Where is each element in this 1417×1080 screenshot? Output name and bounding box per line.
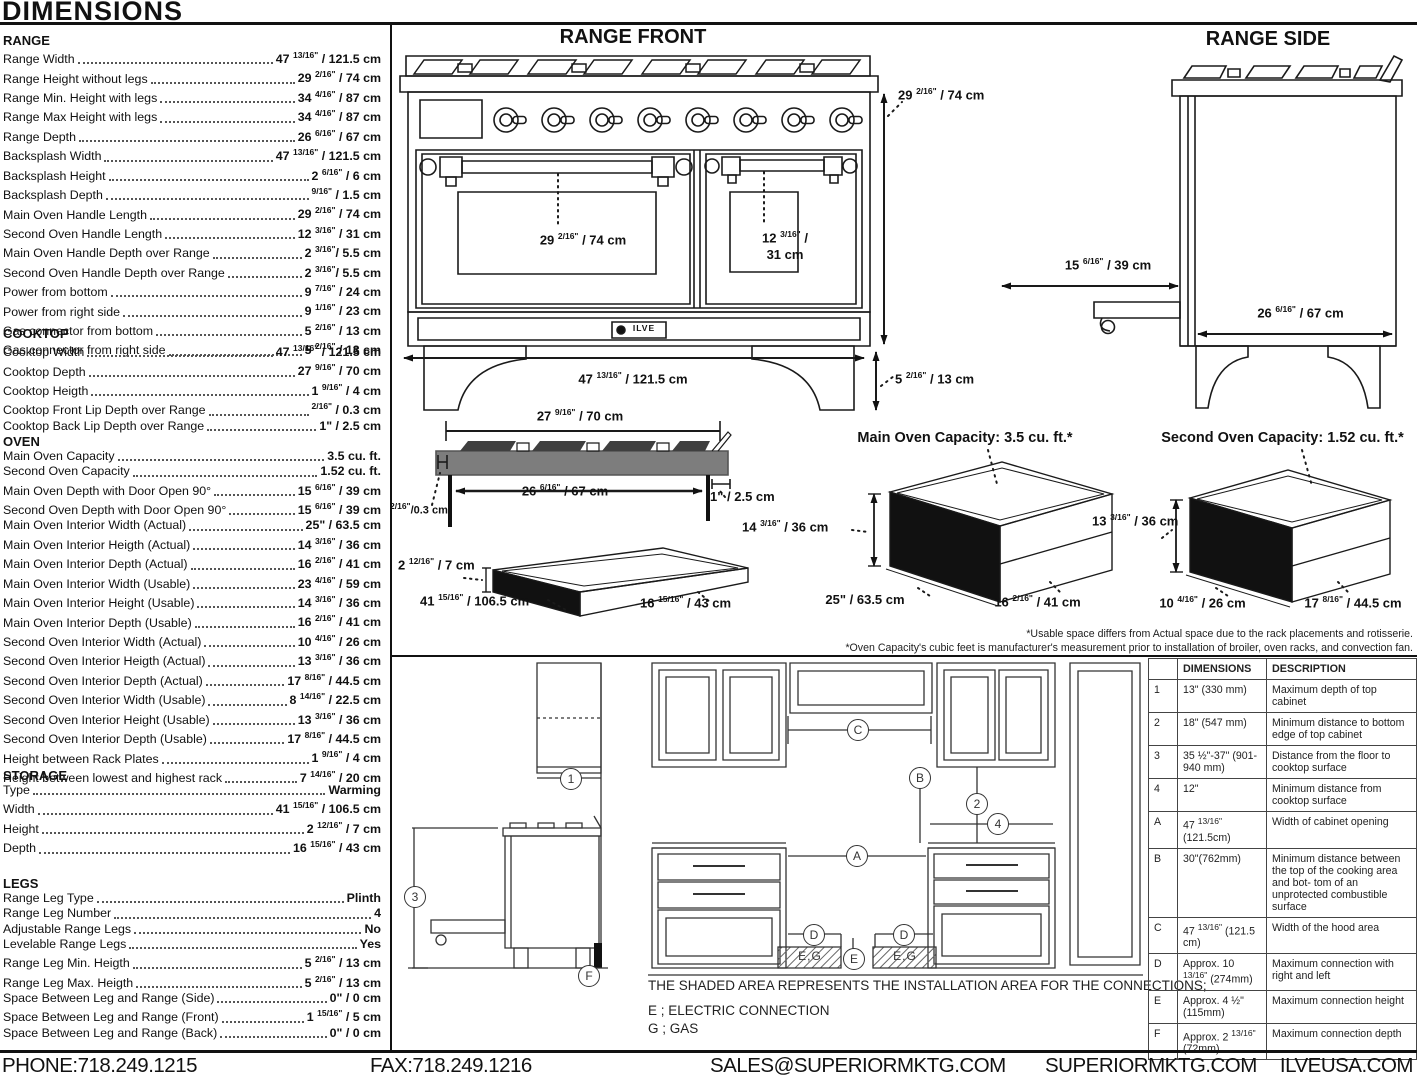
table-cell-description: Width of the hood area <box>1267 917 1417 954</box>
spec-value: 47 13/16" / 121.5 cm <box>276 48 381 67</box>
dotted-leader <box>191 568 295 570</box>
footer-site: SUPERIORMKTG.COM <box>1045 1054 1257 1078</box>
spec-section-storage: STORAGETypeWarmingWidth41 15/16" / 106.5… <box>3 768 381 857</box>
spec-value: 5 2/16" / 13 cm <box>305 972 381 991</box>
footnote-2: *Oven Capacity's cubic feet is manufactu… <box>693 642 1413 656</box>
dotted-leader <box>79 140 295 142</box>
spec-value: 14 3/16" / 36 cm <box>298 592 381 611</box>
spec-value: 27 9/16" / 70 cm <box>298 360 381 379</box>
spec-section-cooktop: COOKTOPCooktop Width47 13/16" / 121.5 cm… <box>3 326 381 434</box>
table-cell-dimensions: 12" <box>1178 779 1267 812</box>
spec-section-legs: LEGSRange Leg TypePlinthRange Leg Number… <box>3 876 381 1041</box>
spec-value: 0" / 0 cm <box>330 991 381 1006</box>
spec-row: Range Leg Max. Heigth5 2/16" / 13 cm <box>3 972 381 991</box>
dotted-leader <box>214 494 295 496</box>
range-front-diagram: RANGE FRONT <box>398 26 998 426</box>
spec-row: Range Leg TypePlinth <box>3 891 381 906</box>
spec-label: Cooktop Depth <box>3 365 86 380</box>
spec-row: Backsplash Width47 13/16" / 121.5 cm <box>3 145 381 164</box>
spec-row: Range Leg Min. Heigth5 2/16" / 13 cm <box>3 952 381 971</box>
spec-label: Levelable Range Legs <box>3 937 126 952</box>
spec-row: Backsplash Height2 6/16" / 6 cm <box>3 165 381 184</box>
table-cell-description: Distance from the floor to cooktop surfa… <box>1267 746 1417 779</box>
spec-label: Second Oven Interior Width (Usable) <box>3 693 205 708</box>
spec-label: Second Oven Interior Depth (Usable) <box>3 732 207 747</box>
spec-label: Adjustable Range Legs <box>3 922 131 937</box>
front-second-handle-label-2: 31 cm <box>735 247 835 262</box>
spec-label: Depth <box>3 841 36 856</box>
spec-value: 13 3/16" / 36 cm <box>298 709 381 728</box>
spec-value: 2 3/16"/ 5.5 cm <box>305 242 381 261</box>
spec-row: Second Oven Interior Width (Actual)10 4/… <box>3 631 381 650</box>
spec-label: Second Oven Handle Depth over Range <box>3 266 225 281</box>
table-cell-id: E <box>1149 990 1178 1023</box>
dotted-leader <box>87 355 273 357</box>
dotted-leader <box>133 967 302 969</box>
dotted-leader <box>109 179 309 181</box>
spec-label: Second Oven Interior Depth (Actual) <box>3 674 203 689</box>
table-cell-description: Maximum connection height <box>1267 990 1417 1023</box>
dotted-leader <box>213 723 295 725</box>
dotted-leader <box>208 704 286 706</box>
spec-label: Range Leg Max. Heigth <box>3 976 133 991</box>
spec-row: Main Oven Handle Length29 2/16" / 74 cm <box>3 203 381 222</box>
table-row: 113" (330 mm)Maximum depth of top cabine… <box>1149 680 1417 713</box>
table-row: A47 13/16"(121.5cm)Width of cabinet open… <box>1149 812 1417 849</box>
spec-row: Main Oven Depth with Door Open 90°15 6/1… <box>3 480 381 499</box>
spec-value: 29 2/16" / 74 cm <box>298 67 381 86</box>
storage-height-label: 2 12/16" / 7 cm <box>398 556 475 572</box>
spec-value: 17 8/16" / 44.5 cm <box>287 670 381 689</box>
spec-row: Main Oven Interior Depth (Actual)16 2/16… <box>3 553 381 572</box>
dotted-leader <box>229 513 294 515</box>
dotted-leader <box>213 257 302 259</box>
table-cell-dimensions: 35 ½"-37" (901-940 mm) <box>1178 746 1267 779</box>
front-leg-height-label: 5 2/16" / 13 cm <box>895 370 974 386</box>
dotted-leader <box>150 218 295 220</box>
gas-connection-note: G ; GAS <box>648 1021 698 1036</box>
spec-row: Range Max Height with legs34 4/16" / 87 … <box>3 106 381 125</box>
spec-value: Plinth <box>347 891 381 906</box>
table-cell-description: Width of cabinet opening <box>1267 812 1417 849</box>
spec-label: Backsplash Height <box>3 169 106 184</box>
table-header-dimensions: DIMENSIONS <box>1178 659 1267 680</box>
spec-value: 41 15/16" / 106.5 cm <box>276 798 381 817</box>
table-header-id <box>1149 659 1178 680</box>
spec-label: Type <box>3 783 30 798</box>
dotted-leader <box>133 475 318 477</box>
footnote-1: *Usable space differs from Actual space … <box>693 628 1413 642</box>
table-header-row: DIMENSIONS DESCRIPTION <box>1149 659 1417 680</box>
spec-label: Main Oven Handle Length <box>3 208 147 223</box>
spec-label: Range Height without legs <box>3 72 148 87</box>
spec-label: Second Oven Capacity <box>3 464 130 479</box>
spec-row: Space Between Leg and Range (Front)1 15/… <box>3 1006 381 1025</box>
spec-label: Space Between Leg and Range (Front) <box>3 1010 219 1025</box>
spec-label: Backsplash Width <box>3 149 101 164</box>
spec-label: Main Oven Capacity <box>3 449 115 464</box>
spec-label: Cooktop Back Lip Depth over Range <box>3 419 204 434</box>
spec-section-oven: OVENMain Oven Capacity3.5 cu. ft.Second … <box>3 434 381 786</box>
spec-value: 34 4/16" / 87 cm <box>298 87 381 106</box>
spec-section-range: RANGERange Width47 13/16" / 121.5 cmRang… <box>3 33 381 359</box>
dotted-leader <box>204 645 294 647</box>
spec-value: 12 3/16" / 31 cm <box>298 223 381 242</box>
spec-label: Range Leg Number <box>3 906 111 921</box>
spec-label: Second Oven Handle Length <box>3 227 162 242</box>
spec-value: 1 9/16" / 4 cm <box>312 747 382 766</box>
spec-row: Space Between Leg and Range (Side)0" / 0… <box>3 991 381 1006</box>
table-cell-dimensions: 47 13/16"(121.5cm) <box>1178 812 1267 849</box>
installation-diagram: 1 3 F C B 2 4 A D D E E,G E,G THE SHADED… <box>398 660 1148 1040</box>
marker-b: B <box>909 767 931 789</box>
spec-value: 26 6/16" / 67 cm <box>298 126 381 145</box>
spec-label: Main Oven Interior Width (Usable) <box>3 577 190 592</box>
header-rule <box>0 22 1417 25</box>
spec-label: Cooktop Heigth <box>3 384 88 399</box>
dotted-leader <box>114 917 371 919</box>
marker-1: 1 <box>560 768 582 790</box>
range-side-drawing <box>998 54 1417 426</box>
dotted-leader <box>209 414 309 416</box>
spec-value: 1.52 cu. ft. <box>320 464 381 479</box>
spec-row: Main Oven Interior Height (Usable)14 3/1… <box>3 592 381 611</box>
table-cell-dimensions: 47 13/16" (121.5 cm) <box>1178 917 1267 954</box>
range-side-title: RANGE SIDE <box>1168 28 1368 51</box>
spec-label: Space Between Leg and Range (Back) <box>3 1026 217 1041</box>
spec-section-title: STORAGE <box>3 768 381 783</box>
dotted-leader <box>104 160 272 162</box>
spec-label: Cooktop Front Lip Depth over Range <box>3 403 206 418</box>
spec-label: Second Oven Interior Width (Actual) <box>3 635 201 650</box>
spec-row: TypeWarming <box>3 783 381 798</box>
spec-row: Depth16 15/16" / 43 cm <box>3 837 381 856</box>
spec-row: Second Oven Interior Depth (Usable)17 8/… <box>3 728 381 747</box>
dotted-leader <box>206 684 285 686</box>
table-cell-id: B <box>1149 848 1178 917</box>
spec-label: Second Oven Depth with Door Open 90° <box>3 503 226 518</box>
footnotes: *Usable space differs from Actual space … <box>693 628 1413 655</box>
spec-row: Second Oven Handle Length12 3/16" / 31 c… <box>3 223 381 242</box>
spec-row: Main Oven Interior Depth (Usable)16 2/16… <box>3 611 381 630</box>
spec-row: Cooktop Front Lip Depth over Range2/16" … <box>3 399 381 418</box>
spec-label: Space Between Leg and Range (Side) <box>3 991 214 1006</box>
dimensions-table: DIMENSIONS DESCRIPTION 113" (330 mm)Maxi… <box>1148 658 1417 1060</box>
spec-row: Second Oven Interior Heigth (Actual)13 3… <box>3 650 381 669</box>
spec-section-title: OVEN <box>3 434 381 449</box>
dotted-leader <box>111 295 302 297</box>
spec-row: Space Between Leg and Range (Back)0" / 0… <box>3 1026 381 1041</box>
spec-value: 1 9/16" / 4 cm <box>312 380 382 399</box>
spec-section-title: LEGS <box>3 876 381 891</box>
footer-fax: FAX:718.249.1216 <box>370 1054 532 1078</box>
spec-row: Range Depth26 6/16" / 67 cm <box>3 126 381 145</box>
dotted-leader <box>33 793 326 795</box>
dotted-leader <box>220 1036 326 1038</box>
table-row: DApprox. 10 13/16" (274mm)Maximum connec… <box>1149 954 1417 991</box>
dotted-leader <box>89 375 295 377</box>
spec-value: 47 13/16" / 121.5 cm <box>276 145 381 164</box>
spec-label: Main Oven Handle Depth over Range <box>3 246 210 261</box>
dotted-leader <box>123 315 302 317</box>
spec-value: 17 8/16" / 44.5 cm <box>287 728 381 747</box>
spec-row: Height2 12/16" / 7 cm <box>3 818 381 837</box>
dotted-leader <box>165 237 295 239</box>
spec-row: Power from right side9 1/16" / 23 cm <box>3 300 381 319</box>
dotted-leader <box>91 394 308 396</box>
spec-row: Range Leg Number4 <box>3 906 381 921</box>
dotted-leader <box>134 932 361 934</box>
marker-4: 4 <box>987 813 1009 835</box>
spec-label: Backsplash Depth <box>3 188 103 203</box>
table-cell-id: 4 <box>1149 779 1178 812</box>
table-cell-description: Maximum depth of top cabinet <box>1267 680 1417 713</box>
spec-row: Levelable Range LegsYes <box>3 937 381 952</box>
marker-3: 3 <box>404 886 426 908</box>
spec-value: 25" / 63.5 cm <box>306 518 381 533</box>
dotted-leader <box>106 198 309 200</box>
spec-row: Second Oven Interior Height (Usable)13 3… <box>3 709 381 728</box>
dotted-leader <box>228 276 302 278</box>
table-cell-description: Minimum distance to bottom edge of top c… <box>1267 713 1417 746</box>
spec-value: 23 4/16" / 59 cm <box>298 573 381 592</box>
spec-row: Cooktop Depth27 9/16" / 70 cm <box>3 360 381 379</box>
marker-a: A <box>846 845 868 867</box>
dotted-leader <box>162 762 309 764</box>
spec-label: Range Width <box>3 52 75 67</box>
dotted-leader <box>193 548 294 550</box>
footer-email: SALES@SUPERIORMKTG.COM <box>710 1054 1006 1078</box>
spec-row: Main Oven Interior Width (Usable)23 4/16… <box>3 573 381 592</box>
table-cell-id: 3 <box>1149 746 1178 779</box>
spec-label: Height between Rack Plates <box>3 752 159 767</box>
spec-value: 5 2/16" / 13 cm <box>305 952 381 971</box>
front-height-label: 29 2/16" / 74 cm <box>898 86 984 102</box>
spec-row: Power from bottom9 7/16" / 24 cm <box>3 281 381 300</box>
spec-row: Range Min. Height with legs34 4/16" / 87… <box>3 87 381 106</box>
spec-label: Second Oven Interior Height (Usable) <box>3 713 210 728</box>
dotted-leader <box>97 901 344 903</box>
marker-2: 2 <box>966 793 988 815</box>
installation-note: THE SHADED AREA REPRESENTS THE INSTALLAT… <box>648 978 1207 993</box>
spec-row: Range Width47 13/16" / 121.5 cm <box>3 48 381 67</box>
spec-row: Main Oven Interior Heigth (Actual)14 3/1… <box>3 534 381 553</box>
spec-value: 0" / 0 cm <box>330 1026 381 1041</box>
dotted-leader <box>207 429 316 431</box>
marker-f: F <box>578 965 600 987</box>
electric-connection-note: E ; ELECTRIC CONNECTION <box>648 1003 830 1018</box>
spec-row: Backsplash Depth9/16" / 1.5 cm <box>3 184 381 203</box>
dotted-leader <box>160 121 294 123</box>
dotted-leader <box>208 665 294 667</box>
dotted-leader <box>42 832 304 834</box>
spec-row: Main Oven Interior Width (Actual)25" / 6… <box>3 518 381 533</box>
dotted-leader <box>38 813 273 815</box>
side-drawer-extension-label: 15 6/16" / 39 cm <box>1033 256 1183 272</box>
table-cell-dimensions: 18" (547 mm) <box>1178 713 1267 746</box>
second-oven-width-label: 10 4/16" / 26 cm <box>1140 594 1265 610</box>
table-cell-description: Minimum distance between the top of the … <box>1267 848 1417 917</box>
main-oven-depth-label: 16 2/16" / 41 cm <box>975 593 1100 609</box>
dotted-leader <box>151 82 295 84</box>
side-depth-label: 26 6/16" / 67 cm <box>1203 304 1398 320</box>
cooktop-width-label: 27 9/16" / 70 cm <box>450 407 710 423</box>
table-cell-description: Maximum connection with right and left <box>1267 954 1417 991</box>
spec-row: Width41 15/16" / 106.5 cm <box>3 798 381 817</box>
dotted-leader <box>217 1001 326 1003</box>
spec-label: Range Leg Type <box>3 891 94 906</box>
dotted-leader <box>193 587 294 589</box>
dotted-leader <box>118 459 325 461</box>
dotted-leader <box>136 986 301 988</box>
spec-value: 3.5 cu. ft. <box>327 449 381 464</box>
dimensions-spec-sheet: DIMENSIONS RANGERange Width47 13/16" / 1… <box>0 0 1417 1080</box>
spec-value: 29 2/16" / 74 cm <box>298 203 381 222</box>
spec-value: 15 6/16" / 39 cm <box>298 499 381 518</box>
spec-value: 9/16" / 1.5 cm <box>312 184 381 203</box>
spec-value: 2 3/16"/ 5.5 cm <box>305 262 381 281</box>
spec-value: 16 15/16" / 43 cm <box>293 837 381 856</box>
spec-label: Width <box>3 802 35 817</box>
spec-row: Second Oven Capacity1.52 cu. ft. <box>3 464 381 479</box>
spec-row: Range Height without legs29 2/16" / 74 c… <box>3 67 381 86</box>
spec-value: 2 12/16" / 7 cm <box>307 818 381 837</box>
dotted-leader <box>197 606 294 608</box>
table-row: 218" (547 mm)Minimum distance to bottom … <box>1149 713 1417 746</box>
spec-value: 10 4/16" / 26 cm <box>298 631 381 650</box>
spec-label: Range Depth <box>3 130 76 145</box>
spec-label: Second Oven Interior Heigth (Actual) <box>3 654 205 669</box>
dotted-leader <box>195 626 295 628</box>
marker-d-right: D <box>893 924 915 946</box>
spec-value: 15 6/16" / 39 cm <box>298 480 381 499</box>
spec-label: Power from right side <box>3 305 120 320</box>
spec-label: Range Min. Height with legs <box>3 91 157 106</box>
main-oven-capacity-diagram: Main Oven Capacity: 3.5 cu. ft.* <box>740 430 1140 630</box>
shaded-area-label-left: E,G <box>780 949 840 963</box>
spec-value: Yes <box>360 937 381 952</box>
spec-value: 2 6/16" / 6 cm <box>312 165 382 184</box>
table-row: B30"(762mm)Minimum distance between the … <box>1149 848 1417 917</box>
spec-value: 2/16" / 0.3 cm <box>312 399 381 418</box>
table-cell-dimensions: Approx. 10 13/16" (274mm) <box>1178 954 1267 991</box>
shaded-area-label-right: E,G <box>875 949 935 963</box>
table-row: 335 ½"-37" (901-940 mm)Distance from the… <box>1149 746 1417 779</box>
storage-depth-label: 16 15/16" / 43 cm <box>640 594 731 610</box>
table-row: EApprox. 4 ½" (115mm)Maximum connection … <box>1149 990 1417 1023</box>
marker-d-left: D <box>803 924 825 946</box>
spec-label: Cooktop Width <box>3 345 84 360</box>
spec-row: Cooktop Heigth1 9/16" / 4 cm <box>3 380 381 399</box>
marker-c: C <box>847 719 869 741</box>
main-oven-width-label: 25" / 63.5 cm <box>800 592 930 607</box>
spec-value: No <box>364 922 381 937</box>
dotted-leader <box>189 529 302 531</box>
spec-value: 9 7/16" / 24 cm <box>305 281 381 300</box>
table-row: 412"Minimum distance from cooktop surfac… <box>1149 779 1417 812</box>
spec-row: Second Oven Interior Depth (Actual)17 8/… <box>3 670 381 689</box>
spec-row: Cooktop Back Lip Depth over Range1" / 2.… <box>3 419 381 434</box>
spec-row: Second Oven Handle Depth over Range2 3/1… <box>3 262 381 281</box>
dotted-leader <box>78 62 273 64</box>
footer-rule <box>0 1050 1417 1053</box>
table-row: C47 13/16" (121.5 cm)Width of the hood a… <box>1149 917 1417 954</box>
dotted-leader <box>129 947 356 949</box>
front-main-handle-label: 29 2/16" / 74 cm <box>493 231 673 247</box>
dotted-leader <box>222 1021 304 1023</box>
spec-row: Adjustable Range LegsNo <box>3 922 381 937</box>
spec-value: Warming <box>328 783 381 798</box>
table-cell-description: Minimum distance from cooktop surface <box>1267 779 1417 812</box>
table-header-description: DESCRIPTION <box>1267 659 1417 680</box>
table-cell-id: D <box>1149 954 1178 991</box>
main-oven-height-label: 14 3/16" / 36 cm <box>742 518 828 534</box>
spec-label: Range Max Height with legs <box>3 110 157 125</box>
front-second-handle-label-1: 12 3/16" / <box>735 229 835 245</box>
spec-value: 1" / 2.5 cm <box>319 419 381 434</box>
spec-value: 14 3/16" / 36 cm <box>298 534 381 553</box>
range-front-title: RANGE FRONT <box>398 26 868 49</box>
spec-row: Second Oven Interior Width (Usable)8 14/… <box>3 689 381 708</box>
second-oven-capacity-diagram: Second Oven Capacity: 1.52 cu. ft.* <box>1090 430 1417 630</box>
table-cell-dimensions: 30"(762mm) <box>1178 848 1267 917</box>
spec-label: Main Oven Interior Width (Actual) <box>3 518 186 533</box>
storage-drawer-drawing <box>398 540 798 640</box>
range-side-diagram: RANGE SIDE <box>998 26 1417 426</box>
spec-value: 8 14/16" / 22.5 cm <box>290 689 381 708</box>
dotted-leader <box>210 742 285 744</box>
spec-label: Range Leg Min. Heigth <box>3 956 130 971</box>
spec-row: Main Oven Handle Depth over Range2 3/16"… <box>3 242 381 261</box>
spec-value: 16 2/16" / 41 cm <box>298 553 381 572</box>
storage-drawer-diagram: 2 12/16" / 7 cm 41 15/16" / 106.5 cm 16 … <box>398 540 798 640</box>
spec-label: Height <box>3 822 39 837</box>
table-cell-id: A <box>1149 812 1178 849</box>
footer-phone: PHONE:718.249.1215 <box>2 1054 197 1078</box>
spec-value: 13 3/16" / 36 cm <box>298 650 381 669</box>
second-oven-depth-label: 17 8/16" / 44.5 cm <box>1288 594 1417 610</box>
spec-row: Second Oven Depth with Door Open 90°15 6… <box>3 499 381 518</box>
horizontal-divider <box>392 655 1417 657</box>
spec-value: 9 1/16" / 23 cm <box>305 300 381 319</box>
cooktop-front-lip-label: 2/16"/0.3 cm <box>390 501 448 517</box>
spec-label: Power from bottom <box>3 285 108 300</box>
spec-value: 1 15/16" / 5 cm <box>307 1006 381 1025</box>
spec-value: 47 13/16" / 121.5 cm <box>276 341 381 360</box>
spec-label: Main Oven Depth with Door Open 90° <box>3 484 211 499</box>
spec-row: Main Oven Capacity3.5 cu. ft. <box>3 449 381 464</box>
spec-row: Height between Rack Plates1 9/16" / 4 cm <box>3 747 381 766</box>
spec-label: Main Oven Interior Height (Usable) <box>3 596 194 611</box>
front-width-label: 47 13/16" / 121.5 cm <box>533 370 733 386</box>
cooktop-inner-width-label: 26 6/16" / 67 cm <box>480 482 650 498</box>
spec-value: 4 <box>374 906 381 921</box>
spec-row: Cooktop Width47 13/16" / 121.5 cm <box>3 341 381 360</box>
table-cell-id: C <box>1149 917 1178 954</box>
storage-width-label: 41 15/16" / 106.5 cm <box>420 592 529 608</box>
footer-brand-site: ILVEUSA.COM <box>1280 1054 1413 1078</box>
spec-label: Main Oven Interior Depth (Actual) <box>3 557 188 572</box>
spec-label: Main Oven Interior Depth (Usable) <box>3 616 192 631</box>
table-cell-dimensions: Approx. 4 ½" (115mm) <box>1178 990 1267 1023</box>
dotted-leader <box>39 852 290 854</box>
table-cell-id: 2 <box>1149 713 1178 746</box>
table-cell-dimensions: 13" (330 mm) <box>1178 680 1267 713</box>
spec-value: 16 2/16" / 41 cm <box>298 611 381 630</box>
spec-label: Main Oven Interior Heigth (Actual) <box>3 538 190 553</box>
table-cell-id: 1 <box>1149 680 1178 713</box>
dotted-leader <box>160 101 294 103</box>
